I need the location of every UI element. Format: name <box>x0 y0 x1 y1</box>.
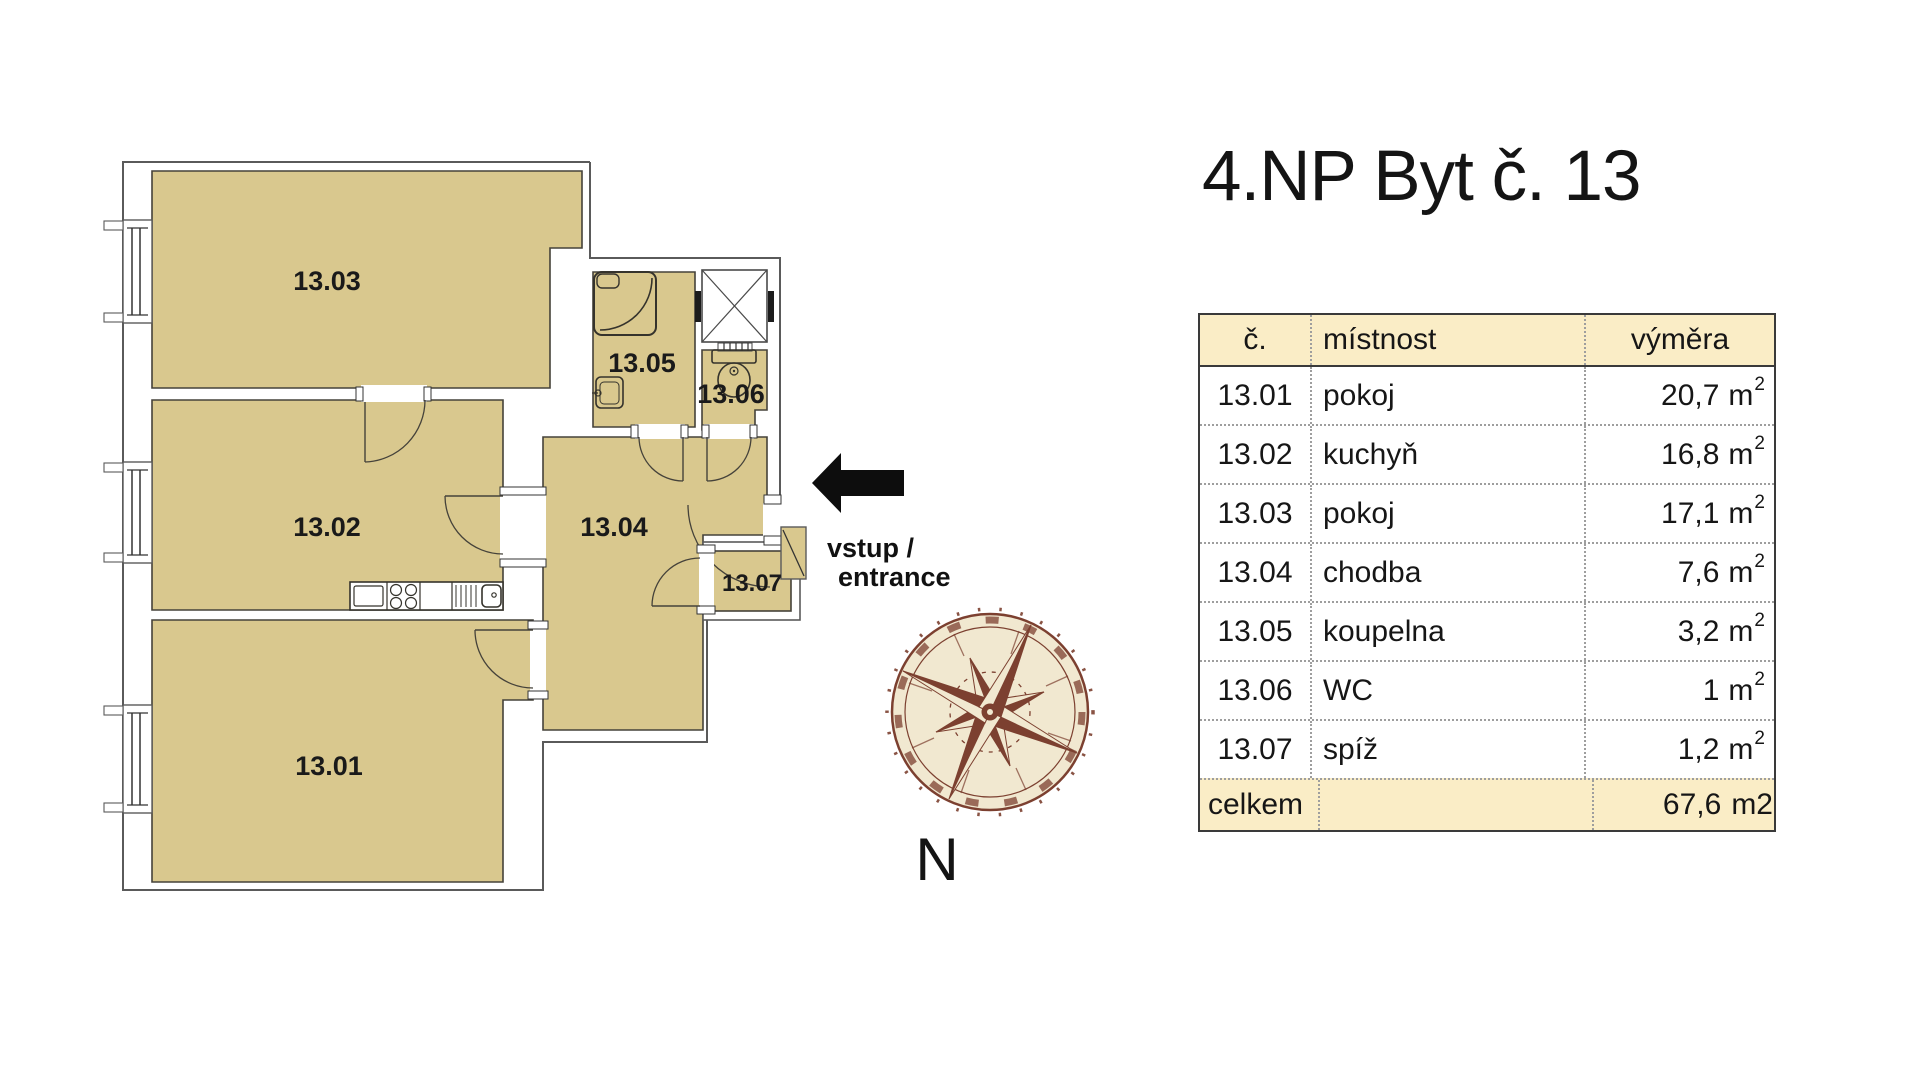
room-table: č. místnost výměra 13.01 pokoj 20,7m2 13… <box>1198 313 1776 832</box>
room-label-13-07: 13.07 <box>722 570 782 597</box>
table-footer-row: celkem 67,6m2 <box>1200 778 1774 830</box>
room-area-13-03 <box>152 171 582 388</box>
table-header-row: č. místnost výměra <box>1200 315 1774 367</box>
entrance-label-line1: vstup / <box>827 533 915 563</box>
table-row: 13.03 pokoj 17,1m2 <box>1200 483 1774 542</box>
cell-room: WC <box>1310 662 1584 719</box>
room-label-13-03: 13.03 <box>293 266 361 296</box>
col-header-number: č. <box>1200 323 1310 357</box>
room-label-13-02: 13.02 <box>293 512 361 542</box>
window-13-01 <box>104 705 152 813</box>
cell-number: 13.01 <box>1200 379 1310 413</box>
footer-spacer <box>1318 780 1592 830</box>
page-title: 4.NP Byt č. 13 <box>1202 136 1641 217</box>
total-label: celkem <box>1200 788 1318 822</box>
cell-room: chodba <box>1310 544 1584 601</box>
window-13-03 <box>104 220 152 323</box>
room-label-13-01: 13.01 <box>295 751 363 781</box>
page: 13.03 13.02 13.01 13.04 13.05 13.06 13.0… <box>0 0 1920 1080</box>
kitchen-counter <box>350 582 503 610</box>
compass-north-label: N <box>915 826 958 893</box>
cell-room: pokoj <box>1310 367 1584 424</box>
cell-area: 1,2m2 <box>1584 721 1774 778</box>
room-area-13-02 <box>152 400 503 610</box>
col-header-area: výměra <box>1584 315 1774 365</box>
cell-number: 13.06 <box>1200 674 1310 708</box>
elevator-shaft <box>695 270 774 351</box>
cell-area: 17,1m2 <box>1584 485 1774 542</box>
cell-room: koupelna <box>1310 603 1584 660</box>
table-row: 13.01 pokoj 20,7m2 <box>1200 367 1774 424</box>
room-label-13-06: 13.06 <box>697 379 765 409</box>
floor-plan: 13.03 13.02 13.01 13.04 13.05 13.06 13.0… <box>90 130 1120 920</box>
window-13-02 <box>104 462 152 563</box>
cell-area: 7,6m2 <box>1584 544 1774 601</box>
cell-area: 16,8m2 <box>1584 426 1774 483</box>
cell-number: 13.07 <box>1200 733 1310 767</box>
table-row: 13.02 kuchyň 16,8m2 <box>1200 424 1774 483</box>
table-row: 13.04 chodba 7,6m2 <box>1200 542 1774 601</box>
cell-room: spíž <box>1310 721 1584 778</box>
cell-number: 13.04 <box>1200 556 1310 590</box>
table-row: 13.05 koupelna 3,2m2 <box>1200 601 1774 660</box>
cell-room: kuchyň <box>1310 426 1584 483</box>
table-row: 13.06 WC 1m2 <box>1200 660 1774 719</box>
room-label-13-04: 13.04 <box>580 512 648 542</box>
cell-area: 20,7m2 <box>1584 367 1774 424</box>
cell-number: 13.05 <box>1200 615 1310 649</box>
cell-area: 1m2 <box>1584 662 1774 719</box>
cell-number: 13.02 <box>1200 438 1310 472</box>
cell-number: 13.03 <box>1200 497 1310 531</box>
cell-room: pokoj <box>1310 485 1584 542</box>
compass-rose-icon <box>887 609 1093 815</box>
room-label-13-05: 13.05 <box>608 348 676 378</box>
total-value: 67,6m2 <box>1592 780 1782 830</box>
cell-area: 3,2m2 <box>1584 603 1774 660</box>
table-row: 13.07 spíž 1,2m2 <box>1200 719 1774 778</box>
col-header-room: místnost <box>1310 315 1584 365</box>
entrance-label-line2: entrance <box>838 562 951 592</box>
entrance-arrow-icon <box>812 453 904 513</box>
